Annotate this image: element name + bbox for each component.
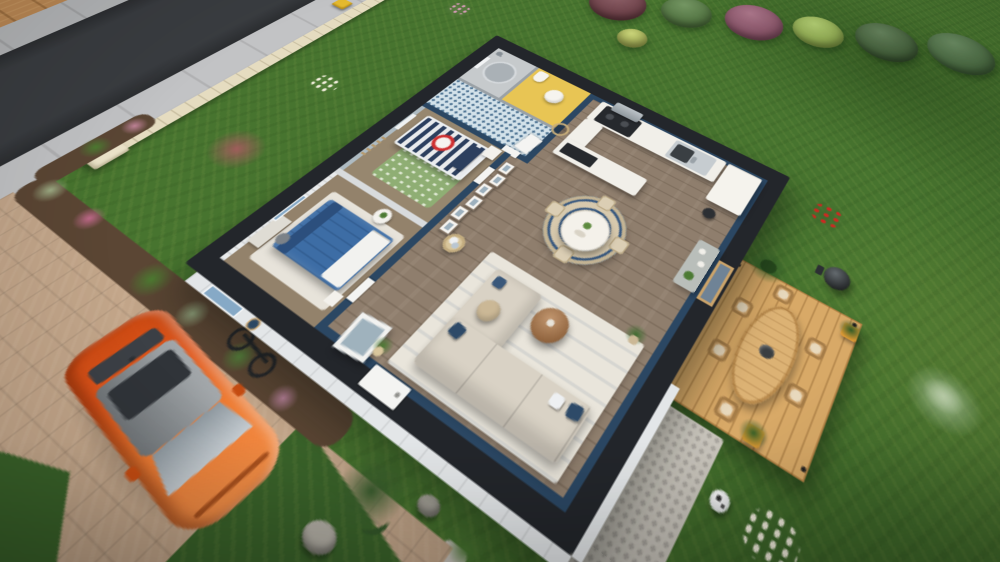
ball-patch [715,494,722,503]
vase [696,260,705,269]
burner [604,113,615,121]
table-decor [545,318,556,328]
aerial-3d-floorplan-render [0,0,1000,562]
table-decor-dish [573,228,587,239]
sideboard-plant [682,269,695,281]
burner [619,120,630,128]
door-knob [393,391,401,398]
vase [698,247,707,255]
ball-patch [720,504,725,510]
table-decor-plant [582,221,594,230]
ground-plane [190,37,787,550]
